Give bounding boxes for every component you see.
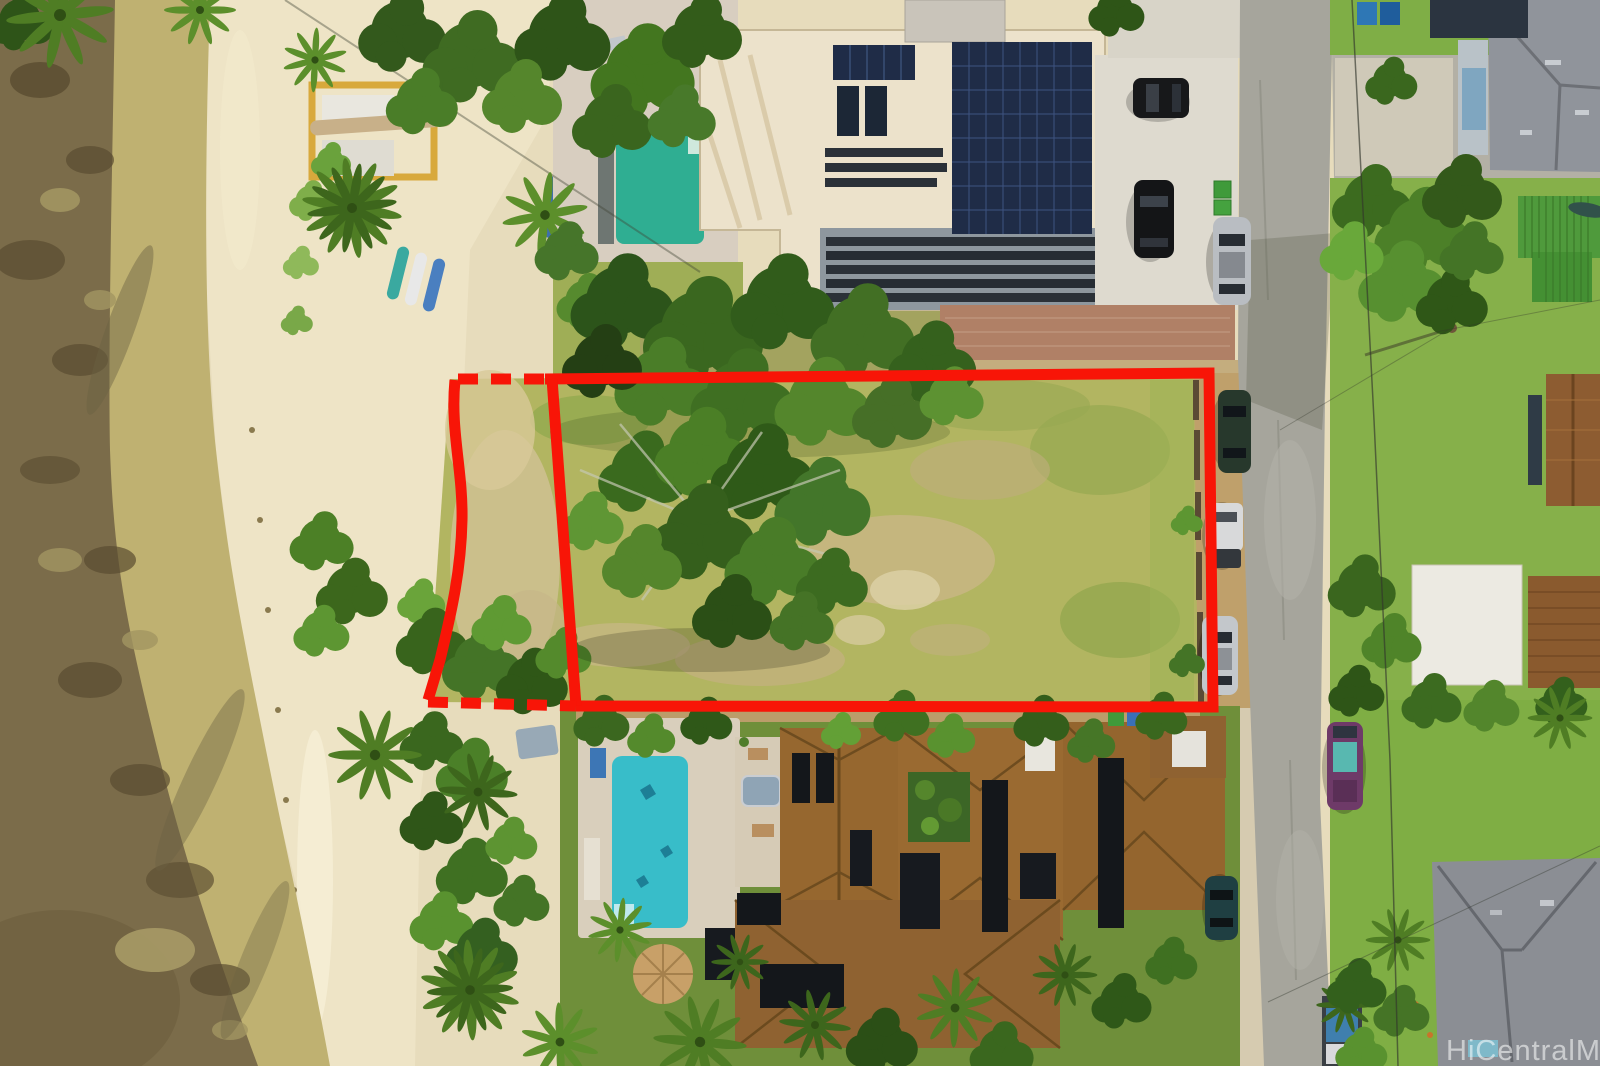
garage-face [1172, 731, 1206, 767]
blue-lounger [590, 748, 606, 778]
white-shed-roof [1412, 565, 1522, 685]
watermark: HiCentralMLS [1446, 1035, 1600, 1066]
thatch-roof [1528, 576, 1600, 688]
blue-trash-bin [1380, 2, 1400, 25]
brick-apron [940, 305, 1235, 363]
car-black-on-driveway [1126, 78, 1190, 122]
aerial-photo: HiCentralMLS [0, 0, 1600, 1066]
surfboard-on-roof [1333, 742, 1357, 772]
dark-truck [1430, 0, 1528, 38]
blue-door [1462, 68, 1486, 130]
blue-tarp-structure [515, 724, 559, 759]
car-purple-van [1322, 722, 1366, 814]
hot-tub [742, 776, 780, 806]
blue-trash-bin [1357, 2, 1377, 25]
thatch-umbrella [633, 944, 693, 1004]
aerial-photo-canvas: HiCentralMLS [0, 0, 1600, 1066]
car-dark-teal-sedan [1202, 874, 1238, 942]
